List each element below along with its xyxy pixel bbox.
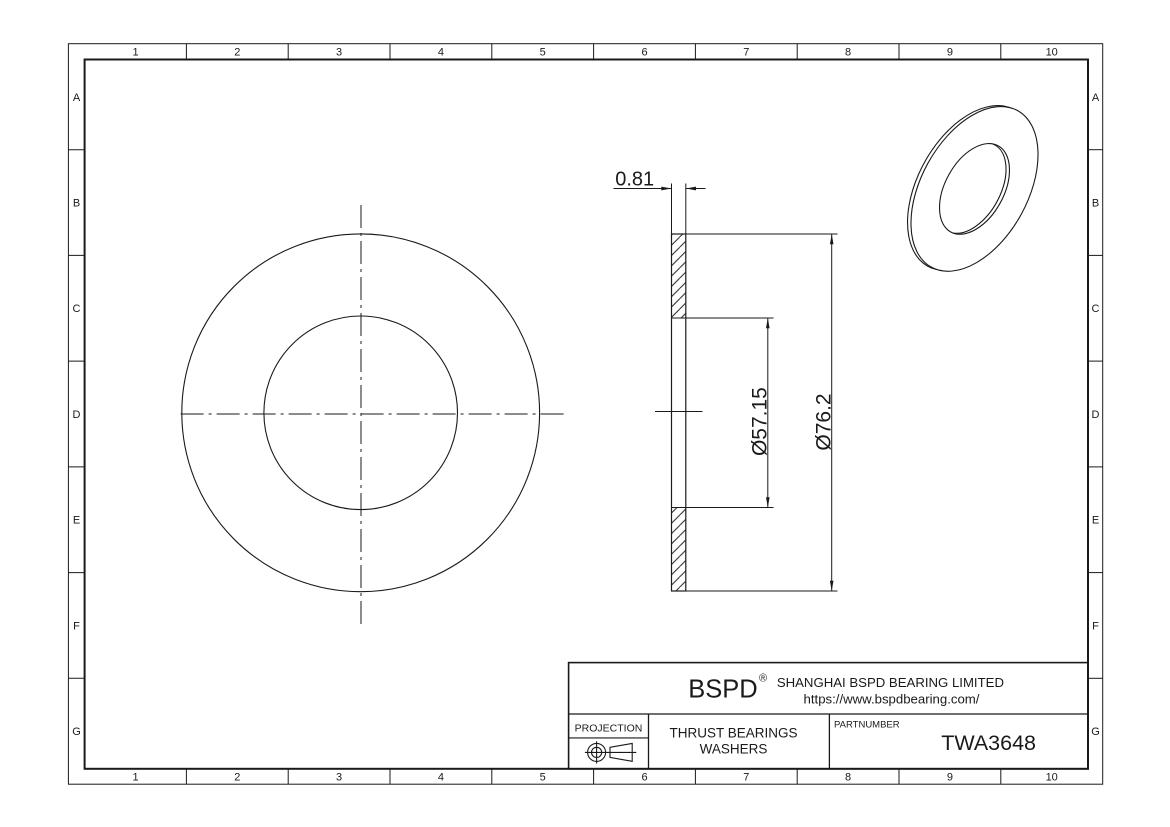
svg-text:3: 3 (336, 47, 342, 59)
svg-text:®: ® (759, 673, 767, 685)
svg-text:5: 5 (540, 47, 546, 59)
svg-text:8: 8 (845, 772, 851, 784)
svg-text:D: D (1092, 409, 1100, 421)
svg-text:E: E (1092, 515, 1099, 527)
svg-text:7: 7 (743, 47, 749, 59)
svg-text:A: A (73, 92, 81, 104)
svg-text:5: 5 (540, 772, 546, 784)
svg-text:G: G (72, 726, 81, 738)
svg-text:7: 7 (743, 772, 749, 784)
svg-text:1: 1 (132, 47, 138, 59)
svg-text:PROJECTION: PROJECTION (575, 723, 643, 735)
svg-text:https://www.bspdbearing.com/: https://www.bspdbearing.com/ (804, 691, 980, 706)
svg-text:THRUST BEARINGS: THRUST BEARINGS (669, 725, 797, 740)
svg-text:BSPD: BSPD (688, 676, 757, 704)
svg-text:F: F (73, 620, 80, 632)
svg-text:3: 3 (336, 772, 342, 784)
svg-text:PARTNUMBER: PARTNUMBER (834, 720, 900, 731)
svg-text:10: 10 (1046, 772, 1058, 784)
svg-text:A: A (1092, 92, 1100, 104)
svg-text:8: 8 (845, 47, 851, 59)
svg-text:9: 9 (947, 47, 953, 59)
svg-text:B: B (1092, 198, 1099, 210)
svg-text:Ø76.2: Ø76.2 (812, 393, 835, 450)
svg-text:6: 6 (641, 47, 647, 59)
svg-text:E: E (73, 515, 80, 527)
svg-text:0.81: 0.81 (615, 169, 654, 191)
svg-text:D: D (73, 409, 81, 421)
svg-text:G: G (1091, 726, 1100, 738)
svg-text:F: F (1092, 620, 1099, 632)
svg-text:2: 2 (234, 772, 240, 784)
svg-text:10: 10 (1046, 47, 1058, 59)
svg-text:Ø57.15: Ø57.15 (749, 387, 772, 456)
svg-text:2: 2 (234, 47, 240, 59)
svg-text:4: 4 (438, 772, 444, 784)
svg-text:SHANGHAI BSPD BEARING LIMITED: SHANGHAI BSPD BEARING LIMITED (777, 675, 1004, 690)
svg-text:9: 9 (947, 772, 953, 784)
svg-text:1: 1 (132, 772, 138, 784)
svg-text:B: B (73, 198, 80, 210)
svg-text:TWA3648: TWA3648 (941, 731, 1036, 755)
svg-text:4: 4 (438, 47, 444, 59)
svg-text:C: C (73, 303, 81, 315)
svg-text:6: 6 (641, 772, 647, 784)
svg-text:WASHERS: WASHERS (700, 741, 768, 756)
svg-text:C: C (1092, 303, 1100, 315)
